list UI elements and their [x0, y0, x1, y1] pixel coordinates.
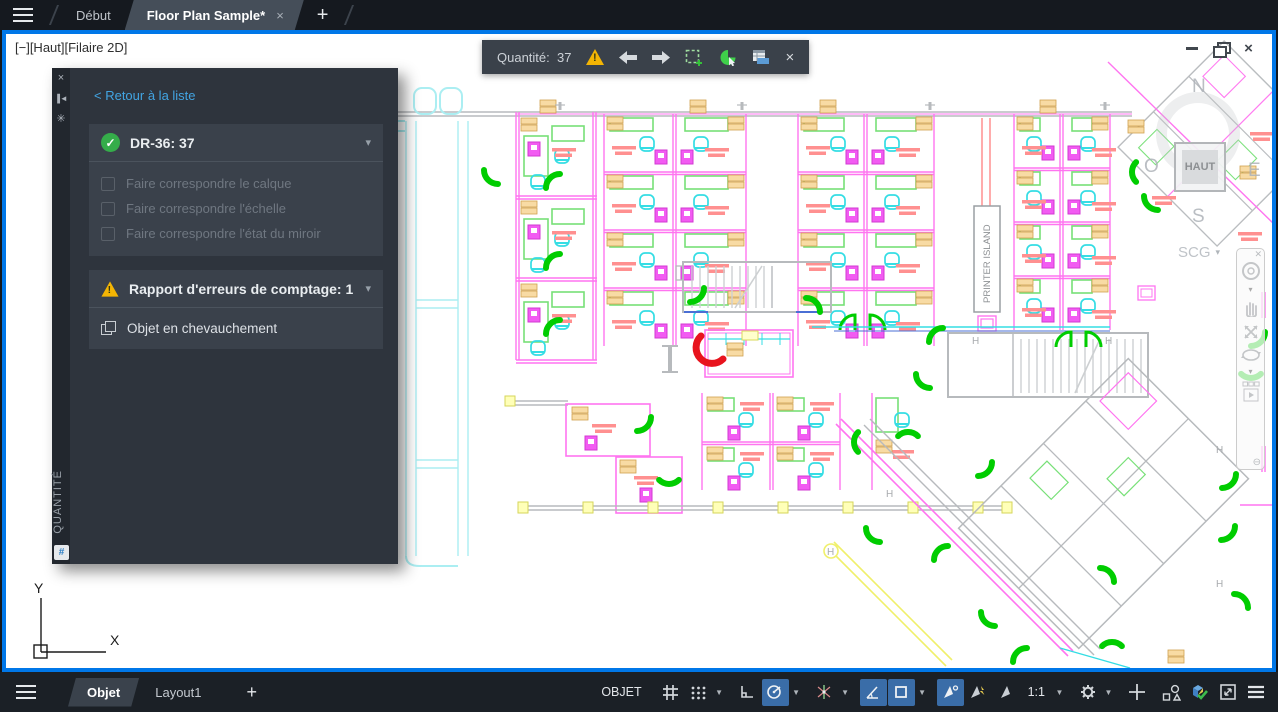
door-arc — [898, 426, 918, 446]
check-circle-icon: ✓ — [101, 133, 120, 152]
match-layer-option[interactable]: Faire correspondre le calque — [89, 171, 383, 196]
isolate-objects-button[interactable] — [1158, 679, 1185, 706]
viewcube-top-face[interactable]: HAUT — [1174, 142, 1226, 192]
zoom-extents-icon[interactable] — [1242, 323, 1260, 341]
close-window-button[interactable]: × — [1241, 42, 1256, 55]
annotation-scale-value[interactable]: 1:1 — [1021, 679, 1052, 706]
zoom-to-object-button[interactable] — [719, 49, 737, 66]
drawing-window-buttons: × — [1185, 42, 1256, 55]
error-report-label: Rapport d'erreurs de comptage: 1 — [129, 281, 365, 297]
palette-properties-icon[interactable]: ✳ — [52, 108, 70, 128]
application-menu-button[interactable] — [0, 0, 46, 30]
polar-tracking-toggle[interactable] — [762, 679, 789, 706]
tab-separator — [344, 5, 354, 25]
palette-autohide-icon[interactable]: ▐◄ — [52, 88, 70, 108]
door-arc — [929, 328, 943, 342]
compass-west[interactable]: O — [1144, 156, 1159, 178]
svg-text:H: H — [1216, 445, 1223, 456]
palette-body: < Retour à la liste ✓ DR-36: 37 ▾ Faire … — [70, 68, 398, 564]
restore-window-button[interactable] — [1213, 42, 1228, 55]
previous-item-button[interactable] — [619, 51, 637, 64]
grid-toggle[interactable] — [657, 679, 684, 706]
svg-text:PRINTER ISLAND: PRINTER ISLAND — [982, 224, 993, 303]
ucs-x-label: X — [110, 632, 120, 648]
snap-toggle[interactable] — [685, 679, 712, 706]
workspace-gear-button[interactable] — [1074, 679, 1101, 706]
count-label: Quantité: 37 — [497, 50, 571, 65]
compass-north[interactable]: N — [1192, 76, 1206, 98]
navigation-bar: ✕ ▾ ▾ ⊖ — [1236, 248, 1265, 470]
autosnap-marker-toggle[interactable] — [811, 679, 838, 706]
viewcube-ucs-menu[interactable]: SCG▾ — [1178, 244, 1220, 261]
graphics-performance-button[interactable] — [1186, 679, 1213, 706]
count-item-header[interactable]: ✓ DR-36: 37 ▾ — [89, 124, 383, 161]
viewcube[interactable]: N O E S HAUT SCG▾ — [1134, 72, 1266, 268]
next-item-button[interactable] — [652, 51, 670, 64]
count-value: 37 — [557, 50, 571, 65]
palette-vertical-title: QUANTITÉ — [52, 470, 70, 534]
checkbox-icon[interactable] — [101, 227, 115, 241]
navbar-collapse-icon[interactable]: ⊖ — [1253, 457, 1261, 468]
fullscreen-button[interactable] — [1214, 679, 1241, 706]
match-mirror-option[interactable]: Faire correspondre l'état du miroir — [89, 221, 383, 246]
ucs-icon[interactable]: Y X — [14, 575, 124, 665]
overlap-icon — [101, 321, 116, 336]
count-toolbar-close-button[interactable]: × — [785, 49, 794, 66]
door-arc — [546, 174, 560, 188]
layout1-tab[interactable]: Layout1 — [139, 678, 217, 707]
object-snap-toggle[interactable] — [888, 679, 915, 706]
svg-text:H: H — [1216, 579, 1223, 590]
compass-south[interactable]: S — [1192, 206, 1205, 228]
chevron-down-icon: ▾ — [1216, 247, 1221, 258]
workspace-dropdown-icon[interactable]: ▼ — [1102, 679, 1115, 706]
customization-menu-button[interactable] — [1242, 679, 1269, 706]
match-scale-option[interactable]: Faire correspondre l'échelle — [89, 196, 383, 221]
snap-dropdown-icon[interactable]: ▼ — [713, 679, 726, 706]
count-errors-card: Rapport d'erreurs de comptage: 1 ▾ Objet… — [89, 270, 383, 349]
osnap-dropdown-icon[interactable]: ▼ — [916, 679, 929, 706]
error-report-header[interactable]: Rapport d'erreurs de comptage: 1 ▾ — [89, 270, 383, 307]
door-arc — [981, 612, 995, 626]
count-item-label: DR-36: 37 — [130, 135, 365, 151]
pan-hand-icon[interactable] — [1242, 299, 1260, 317]
count-palette: × ▐◄ ✳ QUANTITÉ # < Retour à la liste ✓ … — [52, 68, 398, 564]
new-layout-button[interactable]: + — [234, 682, 271, 703]
crosshair-button[interactable] — [1123, 679, 1150, 706]
back-to-list-link[interactable]: < Retour à la liste — [94, 88, 383, 103]
checkbox-icon[interactable] — [101, 177, 115, 191]
door-arc — [934, 546, 948, 560]
count-table-button[interactable] — [752, 49, 770, 65]
create-selection-button[interactable] — [685, 49, 704, 66]
scale-dropdown-icon[interactable]: ▼ — [1053, 679, 1066, 706]
model-space-canvas[interactable]: PRINTER ISLANDHHHHHH [−][Haut][Filaire 2… — [6, 34, 1272, 668]
count-warning-icon[interactable] — [586, 49, 604, 65]
minimize-window-button[interactable] — [1185, 42, 1200, 55]
new-tab-button[interactable]: + — [304, 0, 342, 30]
compass-east[interactable]: E — [1248, 160, 1261, 182]
door-arc — [546, 254, 560, 268]
tab-separator — [49, 5, 59, 25]
tab-floor-plan-sample[interactable]: Floor Plan Sample* × — [125, 0, 304, 30]
door-arc — [659, 470, 679, 490]
door-arc — [637, 417, 651, 431]
hamburger-icon — [16, 691, 36, 694]
annotation-autoscale-toggle[interactable] — [965, 679, 992, 706]
status-toggles: OBJET ▼ ▼ ▼ ▼ — [594, 679, 1278, 706]
navbar-dropdown-icon[interactable]: ▾ — [1248, 369, 1252, 375]
svg-text:H: H — [827, 547, 834, 558]
model-tab[interactable]: Objet — [68, 678, 139, 707]
tab-close-icon[interactable]: × — [276, 8, 284, 23]
door-arc — [1100, 568, 1114, 582]
orbit-icon[interactable] — [1241, 347, 1261, 363]
door-arc — [978, 462, 992, 476]
ortho-toggle[interactable] — [734, 679, 761, 706]
count-item-card: ✓ DR-36: 37 ▾ Faire correspondre le calq… — [89, 124, 383, 256]
steering-wheel-icon[interactable] — [1241, 261, 1261, 281]
drawing-window: PRINTER ISLANDHHHHHH [−][Haut][Filaire 2… — [2, 30, 1276, 672]
door-arc — [1234, 594, 1248, 608]
tab-label: Floor Plan Sample* — [147, 8, 265, 23]
door-arc — [1102, 636, 1122, 656]
palette-title-strip: × ▐◄ ✳ QUANTITÉ # — [52, 68, 70, 564]
status-bar: Objet Layout1 + OBJET ▼ ▼ ▼ — [0, 672, 1278, 712]
autosnap-dropdown-icon[interactable]: ▼ — [839, 679, 852, 706]
door-arc — [1221, 526, 1235, 540]
door-arc — [916, 374, 930, 388]
polar-dropdown-icon[interactable]: ▼ — [790, 679, 803, 706]
chevron-down-icon[interactable]: ▾ — [365, 282, 371, 295]
annotation-scale-toggle[interactable] — [993, 679, 1020, 706]
tab-debut[interactable]: Début — [62, 0, 125, 30]
hamburger-icon — [13, 14, 33, 17]
svg-text:H: H — [1105, 336, 1112, 347]
svg-text:H: H — [886, 489, 893, 500]
osnap-tracking-toggle[interactable] — [860, 679, 887, 706]
door-arc — [1013, 648, 1027, 662]
chevron-down-icon[interactable]: ▾ — [365, 136, 371, 149]
count-toolbar: Quantité: 37 — [482, 40, 809, 74]
file-tab-bar: Début Floor Plan Sample* × + — [0, 0, 1278, 30]
navbar-dropdown-icon[interactable]: ▾ — [1248, 287, 1252, 293]
palette-close-icon[interactable]: × — [52, 68, 70, 88]
error-door-arc — [696, 336, 723, 363]
layout-menu-button[interactable] — [0, 691, 52, 694]
door-arc — [484, 170, 498, 184]
palette-count-icon[interactable]: # — [54, 545, 69, 560]
showmotion-icon[interactable] — [1242, 381, 1260, 403]
door-arc — [1222, 474, 1236, 488]
annotation-visibility-toggle[interactable] — [937, 679, 964, 706]
door-arc — [866, 528, 880, 542]
warning-icon — [101, 281, 118, 296]
svg-text:H: H — [972, 336, 979, 347]
model-space-toggle[interactable]: OBJET — [594, 679, 648, 706]
navbar-close-icon[interactable]: ✕ — [1254, 249, 1262, 260]
checkbox-icon[interactable] — [101, 202, 115, 216]
overlapping-object-item[interactable]: Objet en chevauchement — [89, 308, 383, 349]
viewport-controls[interactable]: [−][Haut][Filaire 2D] — [15, 40, 127, 55]
